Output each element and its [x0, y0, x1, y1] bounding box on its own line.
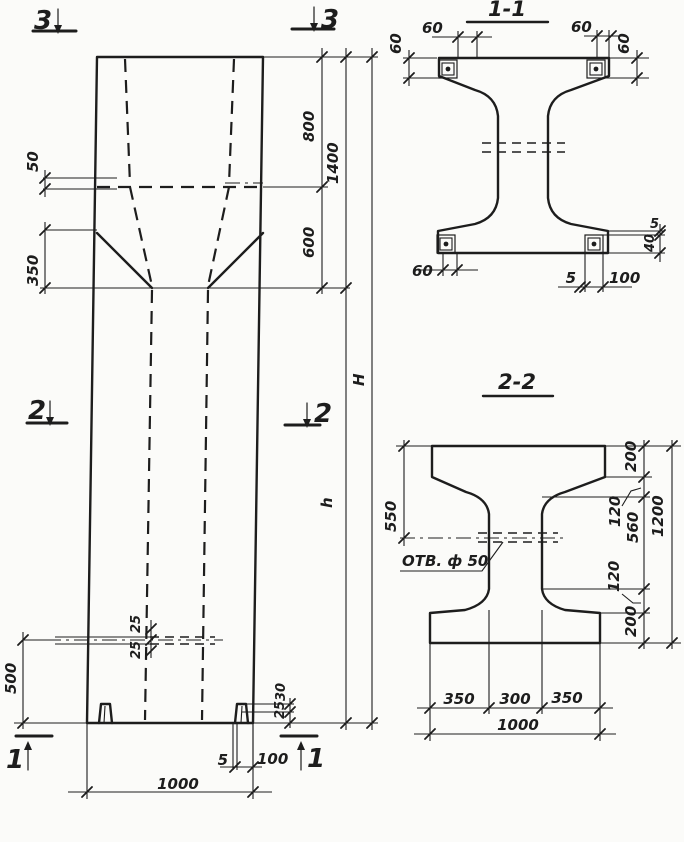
dim-350-right: 350 [551, 689, 582, 707]
section-2-2-dimension-lines [396, 440, 681, 741]
dim-base-plate-100: 100 [257, 750, 288, 768]
marker-label: 2 [28, 396, 46, 426]
dim-1400: 1400 [324, 142, 342, 184]
drawing-sheet: 50 350 800 1400 600 H h 25 25 500 30 25 … [0, 0, 684, 842]
dim-width-1000: 1000 [157, 775, 199, 793]
dim-800: 800 [300, 111, 318, 142]
dim-200-bottom: 200 [622, 606, 640, 637]
dim-560: 560 [624, 512, 642, 543]
anchor-stud-icon [592, 242, 597, 247]
section-marker-2-left: 2 [27, 396, 67, 426]
dim-60-top-left: 60 [422, 19, 443, 37]
dim-5-bottom: 5 [566, 269, 576, 287]
section-2-2-view: 2-2 ОТВ. ф 50 550 200 120 560 120 200 12… [382, 370, 681, 741]
dim-300: 300 [499, 690, 530, 708]
dim-hole-25-lower: 25 [129, 641, 144, 659]
marker-label: 3 [321, 5, 339, 35]
dim-5-right: 5 [650, 217, 659, 232]
section-1-1-view: 1-1 60 60 60 60 60 [387, 0, 665, 292]
dim-40-right: 40 [643, 234, 658, 253]
dim-120-lower: 120 [605, 561, 623, 592]
base-foot-right-inner [241, 706, 242, 723]
embedded-plate-top-right [587, 60, 605, 78]
dim-60-bottom-left: 60 [412, 262, 433, 280]
dim-60-left: 60 [387, 33, 405, 54]
dim-120-lower-leader [622, 594, 641, 603]
dim-1200: 1200 [649, 495, 667, 537]
embedded-plate-bottom-right [585, 235, 603, 253]
section-1-1-web-hole [482, 143, 565, 152]
dim-chamfer-350: 350 [24, 255, 42, 286]
dim-120-upper: 120 [606, 496, 624, 527]
elevation-outline [87, 57, 263, 723]
dim-base-plate-5: 5 [218, 751, 228, 769]
dim-100-bottom: 100 [609, 269, 640, 287]
hole-callout-label: ОТВ. ф 50 [402, 552, 488, 570]
dim-500: 500 [2, 663, 20, 694]
section-2-2-ticks [399, 441, 677, 739]
up-arrow-icon [24, 741, 32, 750]
dim-shaft-height-h: h [318, 497, 336, 508]
dim-60-right: 60 [615, 33, 633, 54]
dim-foot-30: 30 [274, 683, 289, 701]
section-marker-1-left: 1 [6, 736, 52, 775]
marker-label: 2 [314, 399, 332, 429]
column-technical-drawing: 50 350 800 1400 600 H h 25 25 500 30 25 … [0, 0, 684, 842]
section-marker-2-right: 2 [285, 399, 332, 429]
dim-total-height-H: H [350, 373, 368, 386]
hidden-edges [97, 59, 263, 720]
elevation-view: 50 350 800 1400 600 H h 25 25 500 30 25 … [2, 5, 378, 799]
section-marker-3-left: 3 [33, 6, 76, 36]
anchor-stud-icon [594, 67, 599, 72]
embedded-plate-top-left [439, 60, 457, 78]
section-2-2-title: 2-2 [498, 370, 536, 394]
dim-foot-25: 25 [273, 701, 288, 719]
anchor-stud-icon [444, 242, 449, 247]
dim-550: 550 [382, 501, 400, 532]
section-2-2-outline [430, 446, 605, 643]
dim-1000: 1000 [497, 716, 539, 734]
dim-600: 600 [300, 227, 318, 258]
up-arrow-icon [297, 741, 305, 750]
section-1-1-outline [438, 58, 609, 253]
dim-350-left: 350 [443, 690, 474, 708]
dim-ledge-50: 50 [24, 151, 42, 172]
section-marker-3-right: 3 [292, 5, 339, 35]
anchor-stud-icon [446, 67, 451, 72]
dim-200-top: 200 [622, 441, 640, 472]
embedded-plate-bottom-left [437, 235, 455, 253]
base-foot-left-inner [104, 706, 105, 723]
marker-label: 3 [34, 6, 52, 36]
section-1-1-title: 1-1 [488, 0, 526, 21]
dim-60-top-right: 60 [571, 18, 592, 36]
dim-hole-25-upper: 25 [129, 615, 144, 633]
marker-label: 1 [6, 745, 24, 775]
marker-label: 1 [307, 744, 325, 774]
